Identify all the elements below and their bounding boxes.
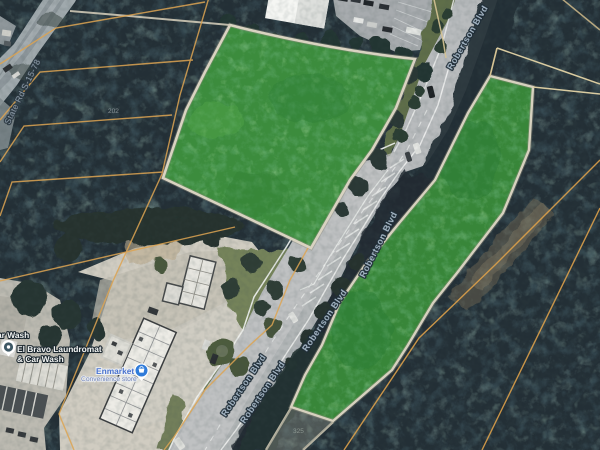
svg-text:202: 202 (108, 108, 119, 115)
svg-text:325: 325 (293, 428, 304, 435)
svg-text:El Bravo Laundromat: El Bravo Laundromat (17, 344, 102, 354)
svg-text:ar Wash: ar Wash (0, 330, 29, 340)
svg-text:& Car Wash: & Car Wash (17, 354, 64, 364)
svg-text:Enmarket: Enmarket (96, 366, 134, 376)
svg-text:Convenience store: Convenience store (81, 376, 137, 383)
